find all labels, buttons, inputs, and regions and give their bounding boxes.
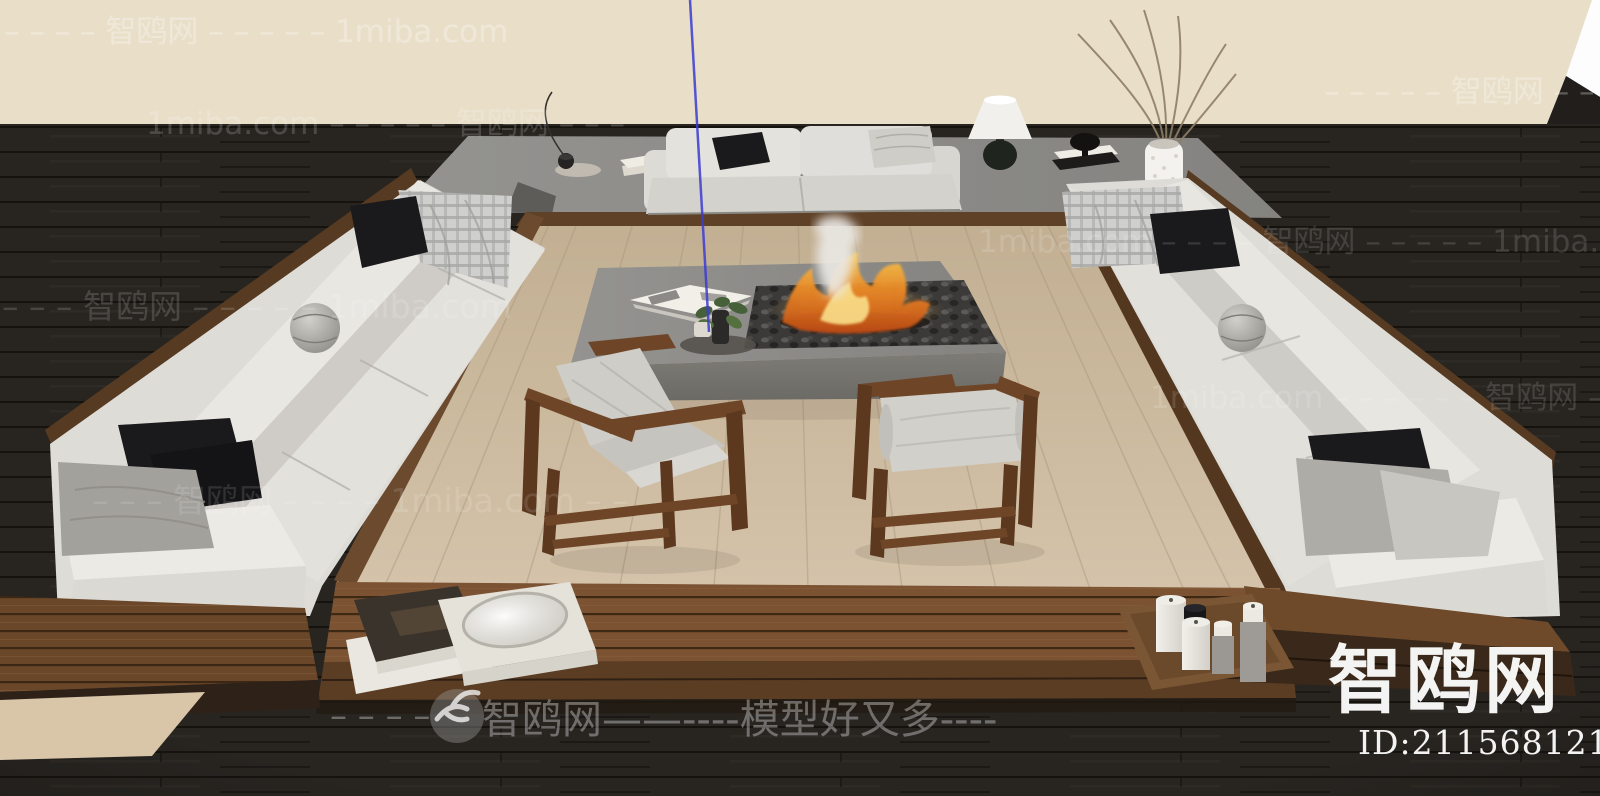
bl-platform-planks (0, 596, 318, 692)
right-ball-pillow (1218, 304, 1266, 352)
brand-logo-text: 智鸥网 (1328, 638, 1562, 724)
bowl-stem (1082, 148, 1088, 156)
corner-brand: 智鸥网 ID:211568121 (1328, 638, 1600, 762)
cup-opening (559, 154, 573, 160)
lamp-base (983, 140, 1017, 170)
lamp-shade-top (984, 96, 1016, 105)
wick-3 (1251, 604, 1255, 608)
watermark-row: – – – – 智鸥网 – – – – – 1miba.com (4, 14, 508, 50)
banner-text: 智鸥网——----模型好又多---- (482, 697, 997, 743)
watermark-row: 1miba.com – – – – – – 智鸥网 – – – (1150, 380, 1600, 416)
watermark-row: 1miba.com – – – – – 智鸥网 – – – (146, 106, 625, 142)
wick-2 (1194, 620, 1198, 624)
chair-shadow-left (550, 546, 740, 574)
candle-tall-holder (1240, 622, 1266, 682)
watermark-row: – – – 智鸥网 – – – – – 1miba.com (2, 287, 512, 326)
render-canvas: – – – – 智鸥网 – – – – – 1miba.com – – – – … (0, 0, 1600, 796)
candle-gray-holder (1212, 636, 1234, 674)
back-sofa (644, 126, 962, 214)
candle-black-top (1184, 604, 1206, 612)
candle-white-1 (1156, 600, 1186, 652)
watermark-row: – – – 智鸥网 – – – – 1miba.com – – (92, 481, 629, 520)
bottom-banner-watermark: – – – – 智鸥网——----模型好又多---- (330, 689, 997, 743)
brand-model-id: ID:211568121 (1358, 723, 1600, 762)
candle-small-top (1214, 621, 1232, 628)
banner-pre-dashes: – – – – (330, 696, 430, 736)
chair2-back-canvas (880, 388, 1028, 472)
watermark-row: 1miba.com – – – – 智鸥网 – – – – – 1miba.co… (978, 224, 1600, 260)
watermark-row: – – – – – 智鸥网 – – (1324, 74, 1594, 110)
canvas-roll-left (879, 404, 893, 460)
vase-opening (1149, 139, 1179, 149)
wick-1 (1169, 598, 1173, 602)
plant-vase-dark (712, 310, 729, 344)
candle-white-2 (1182, 622, 1210, 670)
